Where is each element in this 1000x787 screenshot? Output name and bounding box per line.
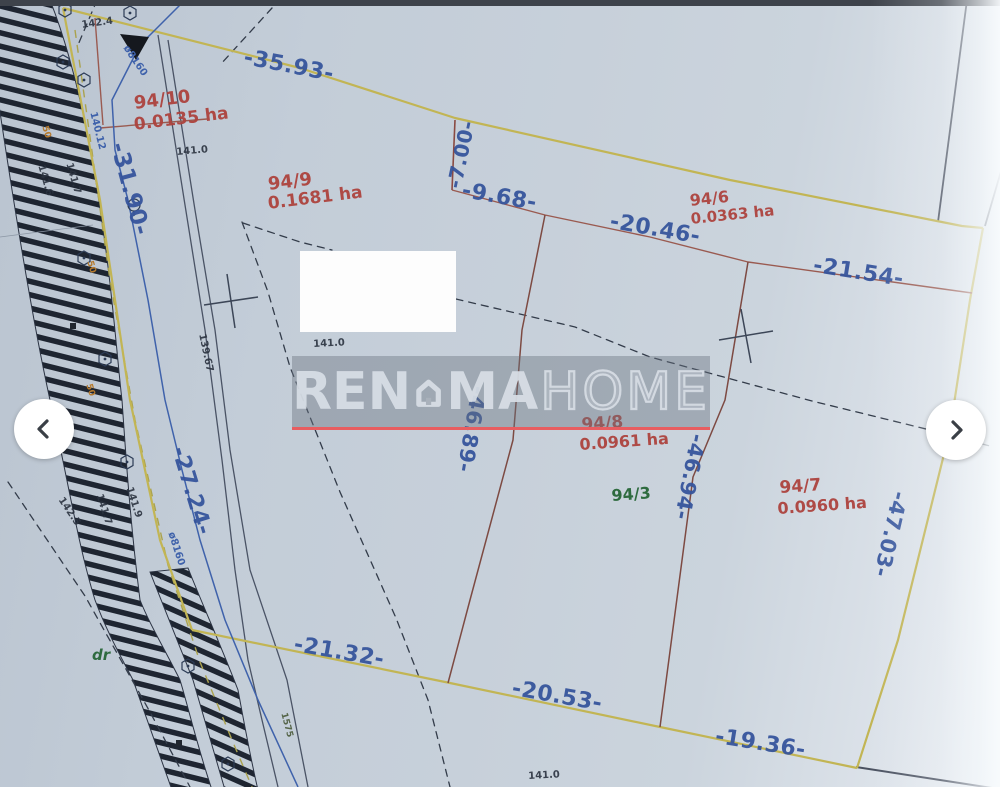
road-label: dr [92,648,110,663]
chevron-left-icon [31,416,57,442]
elevation-label: 141.0 [528,770,560,782]
parcel-number: 94/7 [779,477,822,497]
watermark-text-bold: REN [292,362,411,422]
dark-boundary-lines [856,0,1000,787]
survey-cross-markers [204,274,773,363]
parcel-number: 94/3 [611,485,651,504]
elevation-label: 141.0 [313,338,345,350]
redacted-area [300,251,456,332]
watermark-text-light: HOME [540,362,710,422]
watermark-banner: REN MA HOME [292,356,710,430]
watermark-text-bold: MA [446,362,538,422]
next-image-button[interactable] [926,400,986,460]
top-dark-strip [0,0,1000,6]
chevron-right-icon [943,417,969,443]
prev-image-button[interactable] [14,399,74,459]
photo-viewer: -35.93- -31.90- -7.00- -9.68- -20.46- -2… [0,0,1000,787]
home-icon [413,369,444,415]
